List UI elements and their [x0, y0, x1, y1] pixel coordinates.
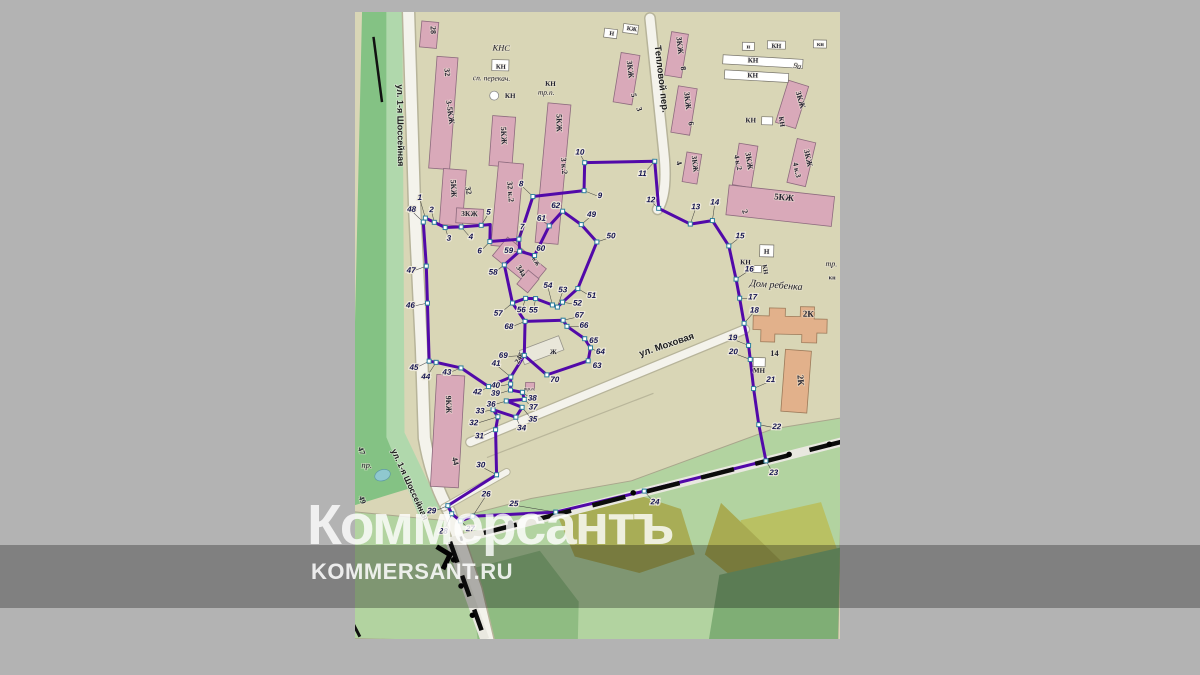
survey-point-number: 64 — [596, 347, 606, 356]
survey-point-number: 30 — [476, 460, 486, 469]
survey-point-number: 22 — [771, 422, 782, 431]
survey-point-number: 53 — [558, 285, 568, 294]
survey-point-number: 3 — [447, 234, 452, 243]
survey-point-number: 39 — [491, 389, 501, 398]
survey-node — [757, 423, 761, 427]
survey-node — [583, 161, 587, 165]
building-label: 28 — [428, 26, 437, 34]
survey-point-number: 8 — [519, 179, 524, 188]
survey-point-number: 9 — [598, 191, 603, 200]
survey-point-number: 40 — [490, 381, 501, 390]
survey-point-number: 68 — [504, 322, 514, 331]
street-name: ул. 1-я Шоссейная — [395, 84, 406, 166]
survey-node — [738, 296, 742, 300]
building-label: Ж — [550, 348, 557, 356]
survey-point-number: 51 — [587, 291, 597, 300]
building-label: КН — [505, 92, 516, 100]
survey-node — [523, 319, 527, 323]
survey-node — [488, 240, 492, 244]
building-label: КН — [777, 116, 787, 128]
building-label: кн — [829, 275, 837, 281]
building-label: 3 к.2 — [559, 157, 569, 174]
utility-box — [753, 358, 765, 367]
survey-node — [496, 415, 500, 419]
survey-node — [459, 225, 463, 229]
survey-point-number: 58 — [489, 268, 499, 277]
survey-node — [653, 159, 657, 163]
survey-point-number: 14 — [710, 198, 720, 207]
building-label: КН — [747, 71, 758, 79]
building-label: 14 — [770, 348, 779, 358]
survey-point-number: 46 — [405, 301, 416, 310]
survey-point-number: 55 — [529, 305, 539, 314]
survey-point-number: 21 — [765, 375, 776, 384]
survey-node — [520, 390, 524, 394]
survey-point-number: 1 — [418, 193, 423, 202]
survey-point-number: 6 — [477, 246, 482, 255]
survey-point-number: 23 — [768, 468, 779, 477]
survey-node — [742, 321, 746, 325]
survey-point-number: 18 — [750, 305, 760, 314]
survey-node — [734, 277, 738, 281]
survey-point-number: 60 — [536, 244, 546, 253]
survey-point-number: 63 — [593, 361, 603, 370]
building-label: КН — [748, 56, 759, 64]
survey-node — [479, 223, 483, 227]
survey-node — [688, 222, 692, 226]
building-label: КН — [745, 116, 756, 124]
survey-node — [487, 385, 491, 389]
survey-point-number: 7 — [520, 222, 525, 231]
survey-node — [427, 359, 431, 363]
survey-point-number: 15 — [736, 231, 746, 240]
building-label: МН — [753, 367, 766, 375]
survey-node — [423, 216, 427, 220]
survey-point-number: 50 — [606, 231, 616, 240]
building-label: тр.п. — [538, 88, 555, 97]
survey-point-number: 16 — [745, 264, 755, 273]
survey-point-number: 36 — [487, 400, 497, 409]
survey-point-number: 33 — [475, 406, 485, 415]
survey-node — [520, 405, 524, 409]
survey-node — [510, 301, 514, 305]
survey-node — [550, 303, 554, 307]
survey-node — [504, 399, 508, 403]
building-label: 3КЖ — [461, 209, 478, 218]
survey-point-number: 19 — [728, 333, 738, 342]
survey-node — [748, 357, 752, 361]
building-label: КН — [545, 80, 556, 88]
building-label: 2К — [795, 374, 806, 386]
survey-node — [495, 473, 499, 477]
survey-node — [545, 373, 549, 377]
survey-node — [565, 324, 569, 328]
survey-point-number: 20 — [728, 347, 739, 356]
survey-point-number: 65 — [589, 336, 599, 345]
survey-node — [459, 366, 463, 370]
kommersant-logo: Коммерсантъ — [307, 492, 673, 558]
survey-node — [747, 343, 751, 347]
survey-point-number: 49 — [586, 210, 597, 219]
building-label: 5КЖ — [774, 191, 795, 203]
survey-point-number: 4 — [468, 232, 474, 241]
building-label: 32 — [442, 68, 452, 77]
building-label: сп. перекач. — [473, 73, 511, 83]
survey-point-number: 42 — [472, 387, 483, 396]
survey-node — [502, 263, 506, 267]
survey-point-number: 48 — [406, 205, 417, 214]
survey-node — [509, 382, 513, 386]
survey-node — [727, 244, 731, 248]
survey-point-number: 11 — [638, 169, 647, 178]
survey-point-number: 12 — [646, 195, 656, 204]
survey-node — [531, 194, 535, 198]
survey-point-number: 43 — [441, 367, 452, 376]
survey-point-number: 62 — [551, 201, 561, 210]
building-label: кн — [817, 42, 825, 48]
survey-node — [583, 337, 587, 341]
survey-node — [421, 220, 425, 224]
survey-node — [518, 249, 522, 253]
survey-node — [588, 346, 592, 350]
survey-point-number: 66 — [579, 321, 589, 330]
building-label: 2К — [803, 309, 815, 319]
building-label: 32 к.2 — [505, 181, 516, 202]
survey-node — [522, 397, 526, 401]
survey-node — [582, 189, 586, 193]
survey-node — [586, 359, 590, 363]
survey-point-number: 47 — [406, 266, 417, 275]
survey-point-number: 32 — [469, 418, 479, 427]
building-label: КН — [771, 43, 781, 50]
survey-point-number: 54 — [543, 281, 553, 290]
survey-node — [432, 220, 436, 224]
building-label: 5КЖ — [499, 127, 509, 145]
survey-node — [764, 459, 768, 463]
building-label: 32 — [463, 186, 473, 196]
survey-node — [424, 264, 428, 268]
survey-node — [657, 206, 661, 210]
building-label: тр. — [825, 259, 837, 268]
survey-point-number: 61 — [537, 214, 547, 223]
survey-point-number: 5 — [486, 207, 491, 216]
survey-node — [595, 240, 599, 244]
survey-point-number: 34 — [517, 423, 527, 432]
survey-node — [752, 387, 756, 391]
article-image: 28323-5КЖ5КЖ323КЖ5КЖ32 к.25КЖ3 к.23КЖ533… — [0, 0, 1200, 675]
survey-node — [560, 300, 564, 304]
building-label: пр. — [361, 460, 372, 470]
kommersant-url: KOMMERSANT.RU — [311, 559, 513, 585]
survey-point-number: 17 — [748, 292, 758, 301]
survey-node — [517, 237, 521, 241]
survey-node — [561, 209, 565, 213]
survey-point-number: 70 — [550, 375, 560, 384]
survey-point-number: 57 — [494, 309, 504, 318]
survey-node — [514, 415, 518, 419]
survey-node — [494, 428, 498, 432]
survey-node — [579, 223, 583, 227]
survey-point-number: 52 — [573, 298, 583, 307]
survey-point-number: 41 — [491, 359, 502, 368]
survey-node — [434, 360, 438, 364]
survey-node — [561, 318, 565, 322]
survey-node — [710, 219, 714, 223]
building-label: 5КЖ — [449, 179, 459, 197]
building-label: КН — [496, 64, 506, 71]
survey-node — [425, 301, 429, 305]
building-label: Н — [764, 248, 770, 256]
survey-point-number: 69 — [499, 351, 509, 360]
survey-point-number: 59 — [504, 246, 514, 255]
survey-node — [547, 224, 551, 228]
survey-point-number: 44 — [420, 372, 431, 381]
survey-point-number: 31 — [475, 431, 485, 440]
survey-point-number: 13 — [691, 202, 701, 211]
survey-point-number: 10 — [575, 147, 585, 156]
building-label: КН — [761, 264, 769, 275]
survey-node — [509, 375, 513, 379]
survey-node — [533, 254, 537, 258]
survey-node — [508, 388, 512, 392]
survey-point-number: 2 — [428, 205, 434, 214]
survey-node — [524, 296, 528, 300]
building-label: 5КЖ — [554, 114, 563, 132]
survey-node — [576, 287, 580, 291]
building-label: КНС — [491, 43, 510, 53]
survey-point-number: 37 — [529, 402, 539, 411]
utility-box — [762, 117, 773, 125]
survey-node — [522, 353, 526, 357]
survey-node — [443, 225, 447, 229]
survey-node — [534, 297, 538, 301]
survey-node — [555, 305, 559, 309]
survey-point-number: 45 — [408, 363, 419, 372]
survey-point-number: 56 — [517, 305, 527, 314]
building-label: тр.п. — [524, 387, 535, 392]
survey-point-number: 67 — [575, 310, 585, 319]
building-label: 9КЖ — [444, 396, 454, 414]
survey-point-number: 38 — [528, 393, 538, 402]
survey-point-number: 35 — [528, 414, 538, 423]
